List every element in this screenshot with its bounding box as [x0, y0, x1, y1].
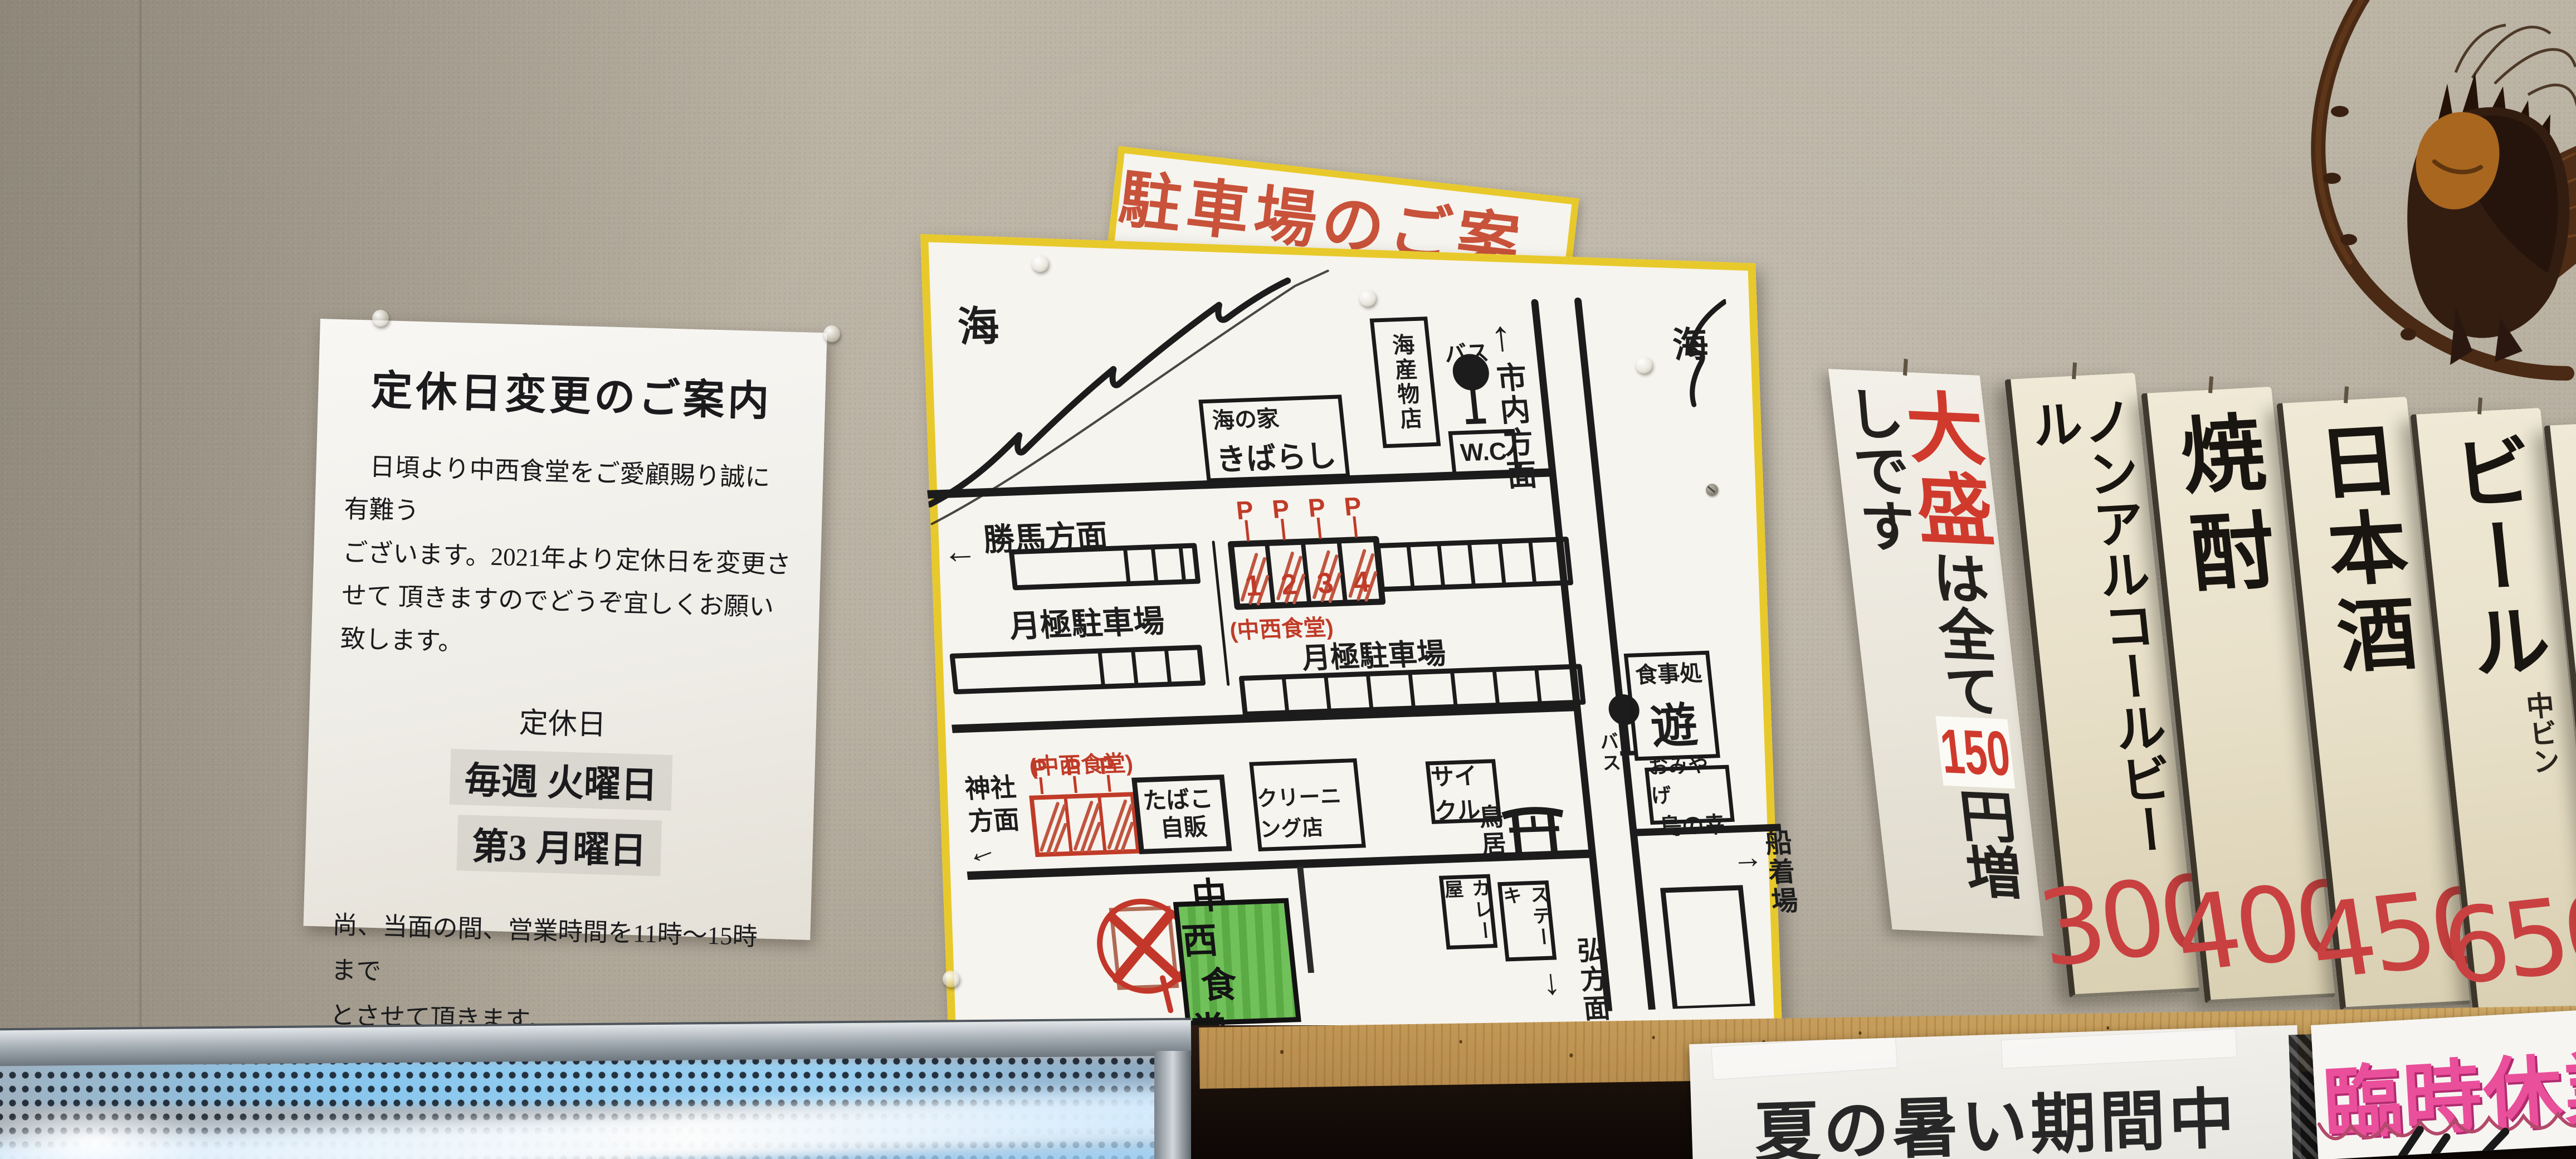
notice-note-line1: 尚、当面の間、営業時間を11時～15時まで: [331, 911, 758, 985]
menu-board-name: 日本酒: [2307, 419, 2414, 683]
curry-shop-label: カレー屋: [1438, 878, 1499, 946]
pushpin-icon: [1359, 290, 1376, 306]
monthly-parking-right-label: 月極駐車場: [1299, 630, 1447, 676]
restaurant-yu-box: 食事処 遊: [1624, 651, 1720, 761]
bus-stop1-label: バス: [1443, 335, 1491, 369]
wall-seam: [139, 0, 142, 1028]
p-flag-icon: P: [1343, 491, 1363, 521]
restaurant-name-line1: 中西: [1175, 871, 1290, 964]
nail-icon: [1903, 359, 1908, 376]
dried-fish-decoration: [2289, 0, 2576, 407]
notice-closed-weekly: 毎週 火曜日: [449, 749, 672, 811]
direction-pier: 船着場: [1754, 828, 1802, 917]
clear-tape: [2001, 1028, 2237, 1069]
sea-label-right: 海: [1670, 316, 1710, 368]
tobacco-label: たばこ自販: [1141, 785, 1217, 843]
summer-period-sign: 夏の暑い期間中: [1689, 1025, 2301, 1159]
restaurant-yu-label2: 遊: [1647, 688, 1700, 757]
menu-board-name: ライス: [2572, 441, 2576, 712]
nail-icon: [2208, 376, 2213, 393]
cleaning-shop-box: クリーニング店: [1249, 758, 1366, 851]
beach-house-box: 海の家 きばらし: [1198, 395, 1350, 482]
nail-icon: [2071, 362, 2076, 379]
menu-board-size-note: 中ビン: [2516, 690, 2565, 776]
oomori-price: 150: [1935, 716, 2015, 788]
nakanishi-shokudo-box: 中西 食堂: [1173, 898, 1301, 1026]
p-flag-icon: P: [1235, 495, 1255, 525]
notice-closed-monthly: 第3 月曜日: [457, 815, 662, 876]
holiday-notice-paper: 定休日変更のご案内 日頃より中西食堂をご愛顧賜り誠に有難う ございます。2021…: [304, 319, 827, 940]
direction-katsuma: 勝馬方面: [981, 510, 1110, 560]
pushpin-icon: [943, 971, 959, 987]
pushpin-icon: [1032, 255, 1048, 272]
parking-map-board: P P P P P P: [920, 234, 1784, 1070]
souvenir-shop-box: おみやげ 島の幸: [1645, 765, 1735, 825]
pushpin-icon: [823, 325, 840, 342]
menu-board-name: ビール: [2441, 430, 2547, 688]
menu-board-price: 650: [2434, 870, 2576, 1009]
curry-shop-box: カレー屋: [1439, 874, 1497, 949]
monthly-parking-left-label: 月極駐車場: [1007, 596, 1167, 647]
oomori-price-sign: 大盛は全て150円増しです: [1828, 369, 2043, 936]
notice-title: 定休日変更のご案内: [347, 356, 797, 428]
restaurant-wall-photo: 定休日変更のご案内 日頃より中西食堂をご愛顧賜り誠に有難う ございます。2021…: [0, 0, 2576, 1159]
stall-number-4: 4: [1352, 565, 1371, 599]
road-middle: [952, 707, 1575, 729]
stall-number-2: 2: [1280, 568, 1299, 602]
torii-icon: [1502, 810, 1567, 854]
direction-shrine: 神社 方面: [963, 772, 1021, 837]
oomori-middle: は全て: [1921, 548, 2002, 719]
insect-lamp: [0, 1023, 1191, 1159]
parking-p-flags: P P P P: [1235, 491, 1364, 542]
restaurant-yu-label1: 食事処: [1633, 655, 1703, 689]
souvenir-label1: おみやげ: [1647, 748, 1729, 809]
pushpin-icon: [372, 310, 389, 327]
pushpin-icon: [1636, 357, 1652, 373]
bus-stop2-label: バス: [1593, 731, 1624, 775]
beach-house-name1: 海の家: [1211, 400, 1280, 435]
steak-shop-label: ステーキ: [1496, 884, 1558, 958]
stall-number-3: 3: [1315, 567, 1335, 601]
temporary-closed-sign: 臨時休業: [2311, 1009, 2576, 1159]
notice-body: 日頃より中西食堂をご愛顧賜り誠に有難う ございます。2021年より定休日を変更さ…: [340, 445, 794, 673]
seafood-shop-label: 海産物店: [1384, 333, 1426, 432]
torii-label: 鳥居: [1470, 803, 1511, 858]
map-drawing-area: P P P P P P: [901, 213, 1799, 1033]
p-flag-icon: P: [1271, 494, 1291, 524]
notice-body-line1: 日頃より中西食堂をご愛顧賜り誠に有難う: [343, 445, 794, 543]
beach-house-name2: きばらし: [1214, 431, 1338, 479]
p-flag-icon: P: [1307, 493, 1327, 522]
lamp-corner-glow: [0, 1104, 211, 1159]
menu-board-name: 焼酎: [2170, 409, 2274, 608]
arrow-left-icon: ←: [940, 531, 979, 572]
cleaning-shop-label: クリーニング店: [1255, 778, 1362, 843]
nakanishi-paren-left: (中西食堂): [1027, 745, 1134, 781]
steak-shop-box: ステーキ: [1497, 880, 1557, 961]
summer-sign-text: 夏の暑い期間中: [1690, 1063, 2301, 1159]
souvenir-label2: 島の幸: [1658, 806, 1728, 841]
stall-number-1: 1: [1243, 569, 1263, 603]
lamp-right-cap: [1154, 1051, 1191, 1159]
lamp-perforated-panel: [0, 1054, 1155, 1159]
notice-body-line3: 頂きますのでどうぞ宜しくお願い致します。: [340, 583, 774, 656]
sea-label-left: 海: [954, 293, 1002, 354]
screw-icon: [1706, 484, 1718, 496]
